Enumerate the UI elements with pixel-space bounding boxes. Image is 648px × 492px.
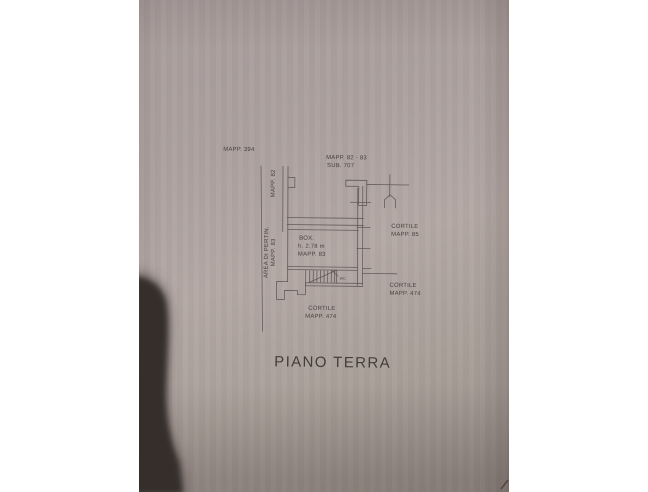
label-cortile-474-right-line2: MAPP. 474: [389, 291, 421, 297]
label-cortile-85-line2: MAPP. 85: [391, 232, 419, 238]
plan-content: MAPP. 394 MAPP. 82 - 83 SUB. 707 MAPP. 8…: [221, 147, 423, 372]
label-mapp-394: MAPP. 394: [223, 147, 255, 153]
floor-plan-drawing: MAPP. 394 MAPP. 82 - 83 SUB. 707 MAPP. 8…: [139, 0, 509, 492]
label-cortile-474-right-line1: CORTILE: [390, 283, 417, 289]
label-cortile-85-line1: CORTILE: [391, 224, 418, 230]
paper-corner-mark: [501, 480, 508, 489]
label-sub-707: SUB. 707: [327, 163, 354, 169]
label-mapp-82-vertical: MAPP. 82: [271, 169, 277, 197]
label-box-height: h. 2.78 m: [298, 244, 325, 250]
label-area-mapp-83: MAPP. 83: [271, 238, 277, 266]
label-box: BOX.: [299, 236, 314, 242]
label-wc: WC: [340, 277, 347, 281]
label-cortile-474-bottom-line1: CORTILE: [308, 306, 335, 312]
label-cortile-474-bottom-line2: MAPP. 474: [305, 314, 337, 320]
label-area-di-pertin: AREA DI PERTIN.: [264, 226, 271, 278]
photo-of-paper-plan: MAPP. 394 MAPP. 82 - 83 SUB. 707 MAPP. 8…: [139, 0, 509, 492]
floor-title: PIANO TERRA: [274, 353, 391, 371]
label-mapp-82-83: MAPP. 82 - 83: [326, 155, 367, 162]
photographed-floor-plan-page: MAPP. 394 MAPP. 82 - 83 SUB. 707 MAPP. 8…: [0, 0, 648, 492]
finger-shadow: [139, 270, 186, 492]
label-box-mapp-83: MAPP. 83: [298, 252, 326, 258]
